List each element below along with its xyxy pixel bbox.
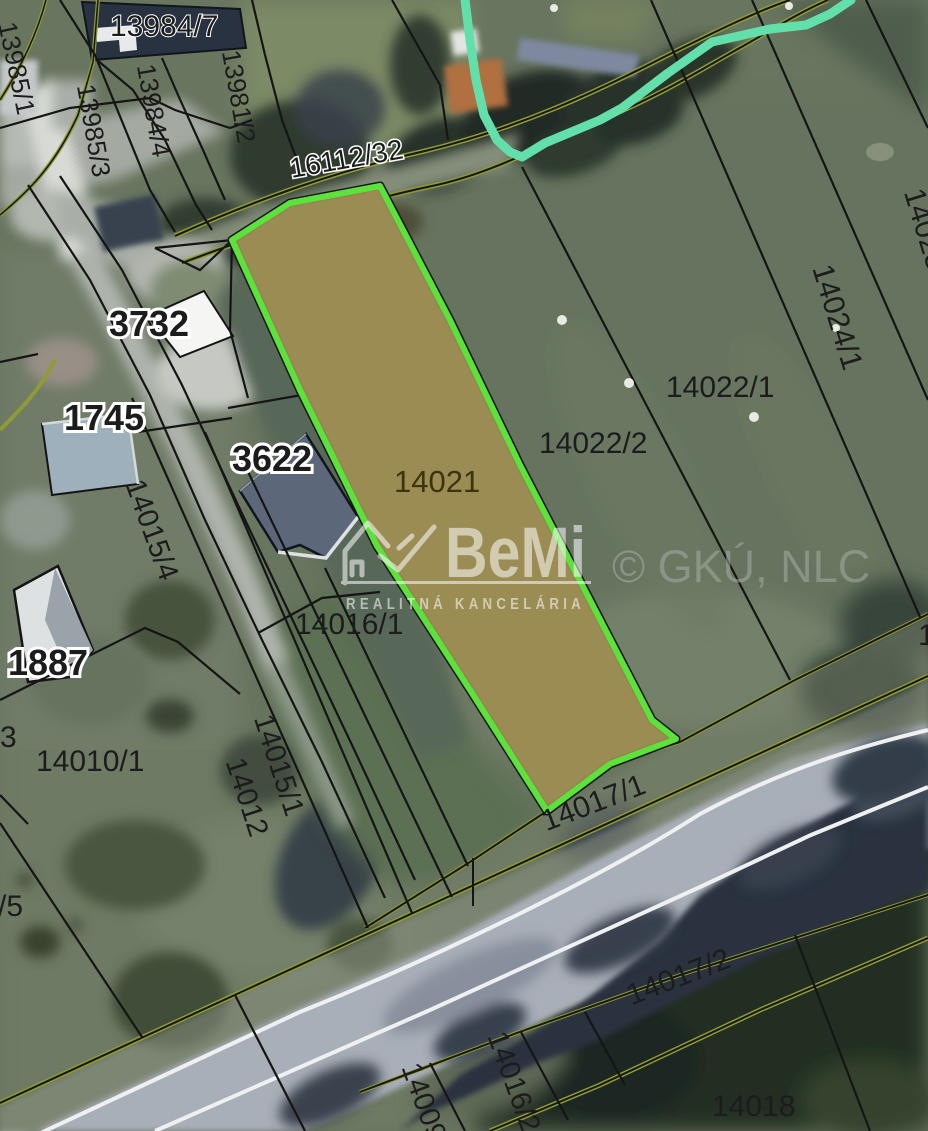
- svg-text:/5: /5: [0, 890, 23, 923]
- svg-text:14021: 14021: [394, 464, 480, 499]
- svg-text:14018: 14018: [712, 1090, 795, 1123]
- svg-text:REALITNÁ KANCELÁRIA: REALITNÁ KANCELÁRIA: [346, 596, 585, 613]
- svg-text:1745: 1745: [64, 397, 144, 438]
- svg-text:1887: 1887: [8, 642, 88, 683]
- svg-text:3732: 3732: [109, 303, 189, 344]
- svg-text:13984/7: 13984/7: [110, 10, 218, 43]
- svg-text:3622: 3622: [232, 438, 312, 479]
- svg-text:14022/1: 14022/1: [666, 371, 774, 404]
- svg-text:14: 14: [918, 619, 928, 652]
- svg-text:© GKÚ, NLC: © GKÚ, NLC: [612, 541, 870, 592]
- svg-text:14022/2: 14022/2: [539, 427, 647, 460]
- svg-text:14010/1: 14010/1: [36, 745, 144, 778]
- svg-text:3: 3: [0, 721, 17, 754]
